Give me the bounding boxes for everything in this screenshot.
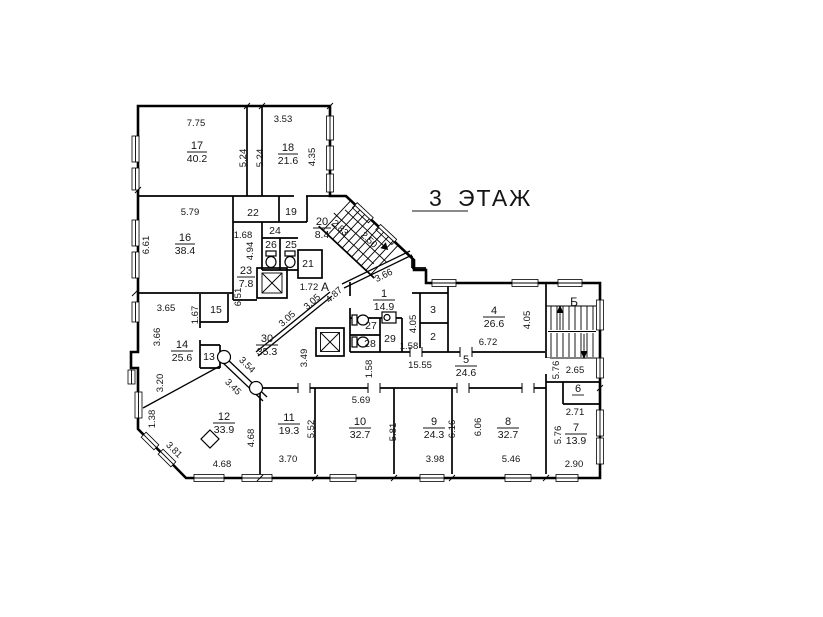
floor-plan-canvas: 3 ЭТАЖ 1740.2 1821.6 1638.4 237.8 208.4 … bbox=[0, 0, 823, 617]
room-label-19: 19 bbox=[285, 206, 297, 218]
svg-text:1: 1 bbox=[381, 288, 387, 300]
dim: 3.66 bbox=[152, 328, 163, 347]
svg-text:20: 20 bbox=[316, 216, 328, 228]
room-label-29: 29 bbox=[384, 333, 396, 345]
floor-word: ЭТАЖ bbox=[458, 185, 532, 211]
svg-text:6: 6 bbox=[575, 383, 581, 395]
room-label-11: 1119.3 bbox=[278, 412, 300, 437]
svg-text:32.7: 32.7 bbox=[498, 429, 519, 441]
room-label-24: 24 bbox=[269, 225, 281, 237]
dim: 3.98 bbox=[426, 454, 445, 465]
floor-plan-page: 3 ЭТАЖ 1740.2 1821.6 1638.4 237.8 208.4 … bbox=[0, 0, 823, 617]
room-label-16: 1638.4 bbox=[175, 232, 196, 257]
dim: 1.58 bbox=[400, 341, 419, 352]
room-label-1: 114.9 bbox=[373, 288, 395, 313]
svg-text:40.2: 40.2 bbox=[187, 153, 208, 165]
dim: 6.16 bbox=[447, 420, 458, 439]
dim: 1.58 bbox=[364, 360, 375, 379]
room-label-13: 13 bbox=[203, 351, 215, 363]
dim: 3.05 bbox=[302, 292, 323, 313]
dim: 6.61 bbox=[141, 236, 152, 255]
svg-text:30: 30 bbox=[261, 333, 273, 345]
svg-text:8: 8 bbox=[505, 416, 511, 428]
dim: 4.05 bbox=[408, 315, 419, 334]
dim: 15.55 bbox=[408, 360, 432, 371]
room-label-28: 28 bbox=[364, 338, 376, 350]
svg-text:24.6: 24.6 bbox=[456, 367, 477, 379]
svg-text:19.3: 19.3 bbox=[279, 425, 300, 437]
dim: 1.67 bbox=[190, 306, 201, 325]
stair-label-a: А bbox=[321, 280, 329, 294]
svg-text:11: 11 bbox=[283, 412, 294, 424]
room-label-7: 713.9 bbox=[565, 422, 587, 447]
svg-text:17: 17 bbox=[191, 140, 203, 152]
dim: 3.66 bbox=[373, 267, 394, 285]
dim: 4.05 bbox=[522, 311, 533, 330]
svg-text:25.6: 25.6 bbox=[172, 352, 193, 364]
room-label-21: 21 bbox=[302, 258, 314, 270]
svg-text:16: 16 bbox=[179, 232, 191, 244]
dim: 7.75 bbox=[187, 118, 206, 129]
dim: 3.53 bbox=[274, 114, 293, 125]
dim: 1.38 bbox=[147, 410, 158, 429]
floor-number: 3 bbox=[429, 185, 444, 211]
dim: 5.76 bbox=[551, 361, 562, 380]
svg-text:18: 18 bbox=[282, 142, 294, 154]
dim: 2.90 bbox=[565, 459, 584, 470]
svg-text:9: 9 bbox=[431, 416, 437, 428]
svg-text:38.4: 38.4 bbox=[175, 245, 196, 257]
dim: 3.65 bbox=[157, 303, 176, 314]
room-label-23: 237.8 bbox=[237, 265, 255, 290]
drawing-title: 3 ЭТАЖ bbox=[412, 185, 532, 211]
elevator-shaft-2 bbox=[316, 328, 344, 356]
room-label-3: 3 bbox=[430, 304, 436, 316]
dim: 5.24 bbox=[238, 149, 249, 168]
room-label-14: 1425.6 bbox=[171, 339, 193, 364]
staircase-b bbox=[548, 305, 596, 359]
dim: 5.24 bbox=[255, 149, 266, 168]
room-label-5: 524.6 bbox=[455, 354, 477, 379]
stair-label-b: Б bbox=[570, 295, 578, 309]
dim: 5.81 bbox=[388, 423, 399, 442]
dim: 6.51 bbox=[233, 288, 244, 307]
dim: 5.69 bbox=[352, 395, 371, 406]
room-label-26: 26 bbox=[265, 239, 277, 251]
svg-text:5: 5 bbox=[463, 354, 469, 366]
dim: 4.35 bbox=[307, 148, 318, 167]
room-label-2: 2 bbox=[430, 331, 436, 343]
dim: 2.50 bbox=[358, 230, 379, 251]
dim: 3.54 bbox=[236, 355, 257, 376]
dim: 3.20 bbox=[155, 374, 166, 393]
dim: 5.46 bbox=[502, 454, 521, 465]
room-label-17: 1740.2 bbox=[187, 140, 208, 165]
dim: 3.70 bbox=[279, 454, 298, 465]
room-label-20: 208.4 bbox=[313, 216, 331, 241]
svg-text:7: 7 bbox=[573, 422, 579, 434]
svg-text:12: 12 bbox=[218, 411, 230, 423]
elevator-shaft-1 bbox=[257, 268, 287, 298]
dim: 6.06 bbox=[473, 418, 484, 437]
svg-text:10: 10 bbox=[354, 416, 366, 428]
dim: 5.76 bbox=[553, 426, 564, 445]
room-label-27: 27 bbox=[365, 320, 377, 332]
svg-text:4: 4 bbox=[491, 305, 497, 317]
dim: 4.94 bbox=[245, 242, 256, 261]
svg-text:21.6: 21.6 bbox=[278, 155, 299, 167]
dim: 4.68 bbox=[213, 459, 232, 470]
room-label-8: 832.7 bbox=[497, 416, 519, 441]
svg-text:26.6: 26.6 bbox=[484, 318, 505, 330]
svg-text:24.3: 24.3 bbox=[424, 429, 445, 441]
svg-text:35.3: 35.3 bbox=[257, 346, 278, 358]
dim: 6.72 bbox=[479, 337, 498, 348]
svg-text:14: 14 bbox=[176, 339, 188, 351]
room-label-22: 22 bbox=[247, 207, 259, 219]
room-label-4: 426.6 bbox=[483, 305, 505, 330]
room-label-9: 924.3 bbox=[423, 416, 445, 441]
dim: 4.68 bbox=[246, 429, 257, 448]
svg-text:14.9: 14.9 bbox=[374, 301, 395, 313]
svg-text:33.9: 33.9 bbox=[214, 424, 235, 436]
dim: 2.71 bbox=[566, 407, 585, 418]
dim: 3.49 bbox=[299, 349, 310, 368]
dim: 2.65 bbox=[566, 365, 585, 376]
room-label-10: 1032.7 bbox=[349, 416, 371, 441]
dim: 5.52 bbox=[306, 420, 317, 439]
dim: 1.68 bbox=[234, 230, 253, 241]
svg-text:8.4: 8.4 bbox=[315, 229, 330, 241]
svg-text:32.7: 32.7 bbox=[350, 429, 371, 441]
dim: 5.79 bbox=[181, 207, 200, 218]
dim: 1.72 bbox=[300, 282, 319, 293]
svg-text:13.9: 13.9 bbox=[566, 435, 587, 447]
svg-text:23: 23 bbox=[240, 265, 252, 277]
room-label-12: 1233.9 bbox=[213, 411, 235, 436]
room-label-25: 25 bbox=[285, 239, 297, 251]
room-label-18: 1821.6 bbox=[278, 142, 299, 167]
room-label-6: 6 bbox=[572, 383, 584, 395]
interior-walls bbox=[138, 106, 600, 474]
room-label-15: 15 bbox=[210, 304, 222, 316]
